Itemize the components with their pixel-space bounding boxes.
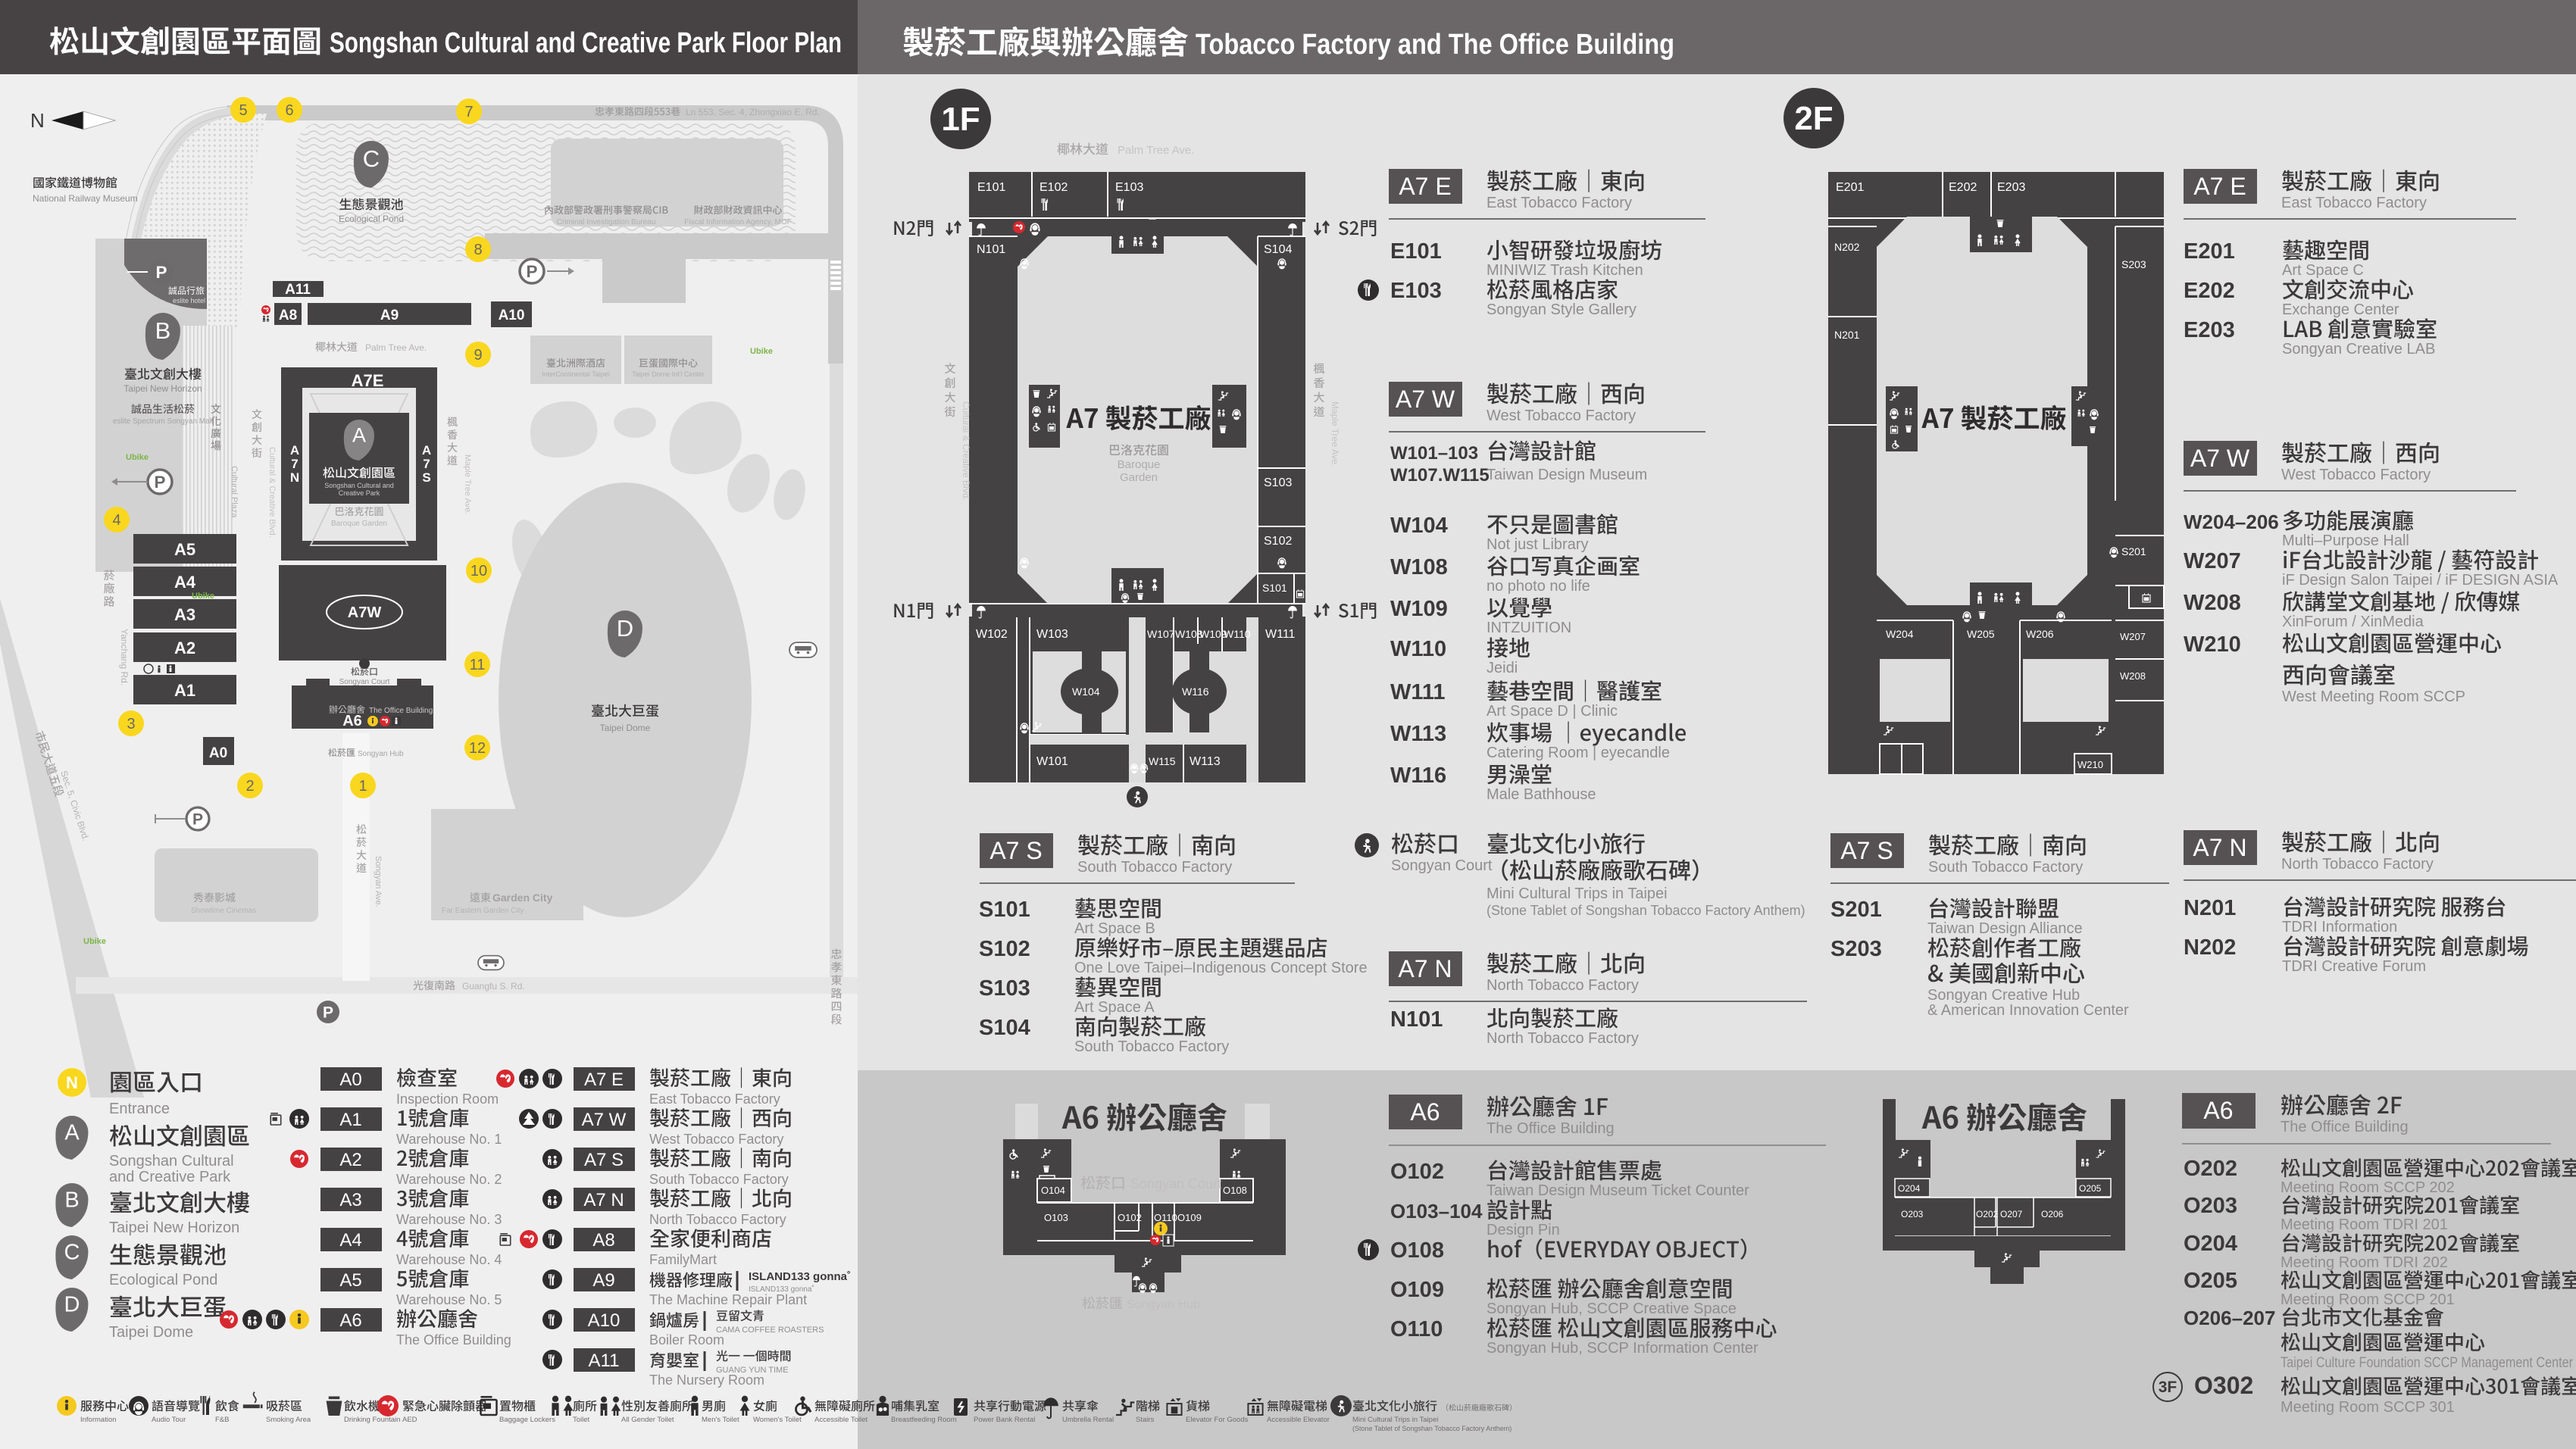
- svg-text:2: 2: [245, 778, 254, 795]
- svg-text:A7 N: A7 N: [1398, 955, 1452, 982]
- svg-text:Art Space A: Art Space A: [1074, 999, 1155, 1016]
- svg-text:A5: A5: [174, 540, 195, 559]
- svg-text:Warehouse No. 2: Warehouse No. 2: [396, 1172, 502, 1187]
- svg-text:A1: A1: [339, 1110, 361, 1130]
- svg-text:W101: W101: [1036, 755, 1068, 768]
- svg-text:InterContinental Taipei: InterContinental Taipei: [542, 370, 609, 378]
- svg-text:A: A: [352, 423, 366, 446]
- svg-text:Palm Tree Ave.: Palm Tree Ave.: [1118, 144, 1194, 157]
- svg-text:Ubike: Ubike: [83, 937, 106, 946]
- svg-text:FamilyMart: FamilyMart: [649, 1252, 717, 1267]
- svg-text:Songyan Hub, SCCP Information: Songyan Hub, SCCP Information Center: [1487, 1340, 1758, 1357]
- svg-text:O109: O109: [1177, 1212, 1202, 1223]
- svg-text:Cultural Plaza: Cultural Plaza: [230, 466, 239, 518]
- svg-text:Creative Park: Creative Park: [339, 489, 380, 497]
- svg-text:6: 6: [285, 102, 293, 119]
- svg-text:A: A: [422, 443, 431, 457]
- svg-text:West Meeting Room SCCP: West Meeting Room SCCP: [2282, 689, 2465, 705]
- svg-text:MINIWIZ Trash Kitchen: MINIWIZ Trash Kitchen: [1487, 262, 1643, 279]
- svg-text:D: D: [64, 1293, 80, 1317]
- svg-text:Maple Tree Ave.: Maple Tree Ave.: [1330, 401, 1340, 467]
- svg-text:A7 S: A7 S: [584, 1150, 624, 1170]
- svg-text:Fiscal Information Agency, MOF: Fiscal Information Agency, MOF: [684, 218, 792, 226]
- svg-text:West Tobacco Factory: West Tobacco Factory: [1487, 408, 1636, 424]
- svg-text:Jeidi: Jeidi: [1487, 660, 1518, 676]
- svg-text:TDRI Information: TDRI Information: [2282, 919, 2397, 935]
- svg-text:W109: W109: [1390, 597, 1448, 621]
- svg-text:Songshan Cultural: Songshan Cultural: [109, 1153, 234, 1170]
- svg-text:South Tobacco Factory: South Tobacco Factory: [1074, 1038, 1229, 1055]
- svg-text:E202: E202: [2184, 279, 2235, 303]
- svg-text:Meeting Room SCCP 202: Meeting Room SCCP 202: [2281, 1179, 2455, 1196]
- svg-text:Criminal Investigation Bureau: Criminal Investigation Bureau: [557, 218, 656, 226]
- svg-text:O203: O203: [2184, 1194, 2237, 1218]
- svg-text:S103: S103: [979, 976, 1030, 1001]
- svg-text:A9: A9: [592, 1270, 614, 1291]
- svg-text:W115: W115: [1149, 755, 1176, 767]
- svg-text:W206: W206: [2026, 628, 2054, 640]
- svg-text:Meeting Room TDRI 202: Meeting Room TDRI 202: [2281, 1254, 2448, 1271]
- svg-text:B: B: [64, 1188, 79, 1213]
- svg-text:O204: O204: [2184, 1232, 2237, 1256]
- svg-text:Songyan Creative Hub: Songyan Creative Hub: [1927, 987, 2080, 1004]
- svg-text:Songshan Cultural and: Songshan Cultural and: [324, 482, 394, 489]
- svg-text:Baroque Garden: Baroque Garden: [331, 520, 387, 528]
- svg-text:A7 N: A7 N: [583, 1190, 624, 1210]
- svg-text:Power Bank Rental: Power Bank Rental: [974, 1416, 1035, 1424]
- svg-text:Baggage Lockers: Baggage Lockers: [499, 1416, 555, 1424]
- svg-text:W116: W116: [1390, 764, 1446, 788]
- svg-text:W116: W116: [1182, 685, 1209, 698]
- svg-text:A7 W: A7 W: [2190, 445, 2250, 472]
- svg-text:A7 S: A7 S: [1840, 837, 1893, 864]
- svg-text:4: 4: [112, 512, 120, 529]
- svg-text:Women's Toilet: Women's Toilet: [753, 1416, 802, 1424]
- svg-text:S201: S201: [2121, 545, 2146, 557]
- svg-text:A4: A4: [339, 1230, 361, 1251]
- svg-text:E101: E101: [1390, 239, 1442, 264]
- svg-text:12: 12: [469, 740, 486, 757]
- svg-text:Songshan Cultural and Creative: Songshan Cultural and Creative Park Floo…: [330, 27, 842, 59]
- svg-text:C: C: [363, 145, 380, 172]
- svg-text:Taiwan Design Museum: Taiwan Design Museum: [1487, 467, 1647, 483]
- svg-text:Smoking Area: Smoking Area: [266, 1416, 311, 1424]
- svg-text:P: P: [527, 262, 538, 281]
- svg-text:A6: A6: [339, 1310, 361, 1331]
- svg-text:Male Bathhouse: Male Bathhouse: [1487, 786, 1596, 803]
- svg-text:The Machine Repair Plant: The Machine Repair Plant: [649, 1292, 807, 1307]
- svg-text:O206–207: O206–207: [2184, 1307, 2275, 1329]
- svg-text:O103: O103: [1044, 1212, 1068, 1223]
- svg-text:A2: A2: [339, 1150, 361, 1170]
- svg-text:Maple Tree Ave.: Maple Tree Ave.: [463, 454, 472, 514]
- svg-text:3F: 3F: [2159, 1379, 2177, 1396]
- svg-text:Design Pin: Design Pin: [1487, 1222, 1560, 1238]
- svg-text:eslite hotel: eslite hotel: [173, 297, 205, 304]
- svg-text:2F: 2F: [1794, 100, 1833, 137]
- svg-text:Tobacco Factory and The Office: Tobacco Factory and The Office Building: [1196, 29, 1674, 61]
- svg-text:A2: A2: [174, 639, 195, 657]
- svg-text:N101: N101: [1390, 1007, 1443, 1032]
- svg-text:O202: O202: [2184, 1157, 2237, 1181]
- svg-text:S104: S104: [1264, 243, 1292, 256]
- svg-text:E203: E203: [1997, 181, 2025, 194]
- svg-text:W210: W210: [2077, 759, 2103, 770]
- svg-text:GUANG YUN TIME: GUANG YUN TIME: [716, 1366, 789, 1375]
- svg-text:O204: O204: [1898, 1183, 1921, 1194]
- svg-text:A4: A4: [174, 573, 196, 592]
- svg-text:Audio Tour: Audio Tour: [152, 1416, 186, 1424]
- svg-text:Far Eastern Garden City: Far Eastern Garden City: [442, 907, 524, 915]
- svg-text:A: A: [64, 1121, 80, 1145]
- svg-text:O104: O104: [1041, 1185, 1065, 1196]
- svg-text:A10: A10: [499, 308, 525, 323]
- svg-text:7: 7: [423, 457, 430, 471]
- svg-text:Mini Cultural Trips in Taipei: Mini Cultural Trips in Taipei: [1487, 885, 1668, 902]
- svg-text:A7 W: A7 W: [1396, 386, 1455, 413]
- svg-text:O108: O108: [1223, 1185, 1247, 1196]
- svg-text:W102: W102: [976, 628, 1008, 641]
- svg-text:F&B: F&B: [215, 1416, 229, 1424]
- svg-text:9: 9: [474, 347, 482, 364]
- svg-text:Songyan Ave.: Songyan Ave.: [374, 856, 383, 907]
- svg-text:S203: S203: [2121, 258, 2146, 270]
- svg-text:Multi–Purpose Hall: Multi–Purpose Hall: [2282, 532, 2409, 549]
- svg-text:Meeting Room SCCP 301: Meeting Room SCCP 301: [2281, 1399, 2455, 1416]
- svg-text:Cultural & Creative Blvd.: Cultural & Creative Blvd.: [961, 401, 971, 501]
- svg-text:S102: S102: [1264, 535, 1292, 548]
- svg-text:O202: O202: [1976, 1209, 1999, 1219]
- svg-text:E103: E103: [1390, 279, 1442, 303]
- svg-text:1F: 1F: [941, 101, 980, 138]
- svg-text:O302: O302: [2194, 1372, 2253, 1399]
- svg-text:W204–206: W204–206: [2184, 511, 2279, 533]
- svg-text:CAMA COFFEE ROASTERS: CAMA COFFEE ROASTERS: [716, 1326, 824, 1335]
- svg-text:Meeting Room TDRI 201: Meeting Room TDRI 201: [2281, 1216, 2448, 1233]
- svg-text:O205: O205: [2079, 1183, 2102, 1194]
- svg-text:North Tobacco Factory: North Tobacco Factory: [649, 1212, 786, 1227]
- svg-text:Meeting Room SCCP 201: Meeting Room SCCP 201: [2281, 1291, 2455, 1308]
- svg-text:A7 S: A7 S: [989, 837, 1042, 864]
- svg-text:ISLAND133 gonna˚: ISLAND133 gonna˚: [749, 1270, 851, 1283]
- svg-text:A5: A5: [339, 1270, 361, 1291]
- svg-text:Songyan Hub, SCCP Creative Spa: Songyan Hub, SCCP Creative Space: [1487, 1301, 1737, 1317]
- svg-text:A7 E: A7 E: [1399, 173, 1451, 200]
- svg-text:O102: O102: [1118, 1212, 1142, 1223]
- svg-text:Breastfeeding Room: Breastfeeding Room: [891, 1416, 957, 1424]
- svg-text:A3: A3: [339, 1190, 361, 1210]
- svg-text:West Tobacco Factory: West Tobacco Factory: [2281, 467, 2431, 483]
- svg-text:N202: N202: [2184, 935, 2236, 960]
- svg-text:Taiwan Design Alliance: Taiwan Design Alliance: [1927, 920, 2083, 937]
- svg-text:W110: W110: [1390, 637, 1446, 661]
- svg-text:A7W: A7W: [348, 604, 382, 621]
- svg-text:A7E: A7E: [352, 371, 384, 390]
- svg-text:Ln 553, Sec. 4, Zhongxiao E. R: Ln 553, Sec. 4, Zhongxiao E. Rd.: [686, 107, 820, 117]
- svg-text:Taipei Dome: Taipei Dome: [600, 723, 651, 733]
- svg-text:Taipei New Horizon: Taipei New Horizon: [109, 1219, 239, 1236]
- svg-text:E201: E201: [2184, 239, 2235, 264]
- svg-text:O110: O110: [1390, 1317, 1443, 1341]
- svg-text:5: 5: [239, 102, 247, 119]
- svg-text:W107.W115: W107.W115: [1390, 465, 1490, 486]
- svg-text:C: C: [64, 1241, 80, 1265]
- svg-text:iF Design Salon Taipei / iF DE: iF Design Salon Taipei / iF DESIGN ASIA: [2282, 572, 2559, 589]
- svg-text:1: 1: [358, 778, 367, 795]
- svg-text:3: 3: [127, 716, 135, 732]
- svg-text:10: 10: [470, 563, 487, 579]
- svg-text:South Tobacco Factory: South Tobacco Factory: [1928, 859, 2083, 876]
- svg-text:S103: S103: [1264, 476, 1292, 489]
- svg-text:S102: S102: [979, 937, 1030, 961]
- svg-text:Songyan Style Gallery: Songyan Style Gallery: [1487, 301, 1637, 318]
- svg-text:A7 W: A7 W: [582, 1110, 627, 1130]
- svg-text:W205: W205: [1967, 628, 1995, 640]
- svg-text:A8: A8: [592, 1230, 614, 1251]
- svg-text:B: B: [155, 317, 171, 344]
- svg-text:W208: W208: [2184, 591, 2241, 615]
- svg-text:N: N: [290, 470, 299, 485]
- svg-text:W210: W210: [2184, 632, 2241, 657]
- svg-text:Yanchang Rd.: Yanchang Rd.: [119, 629, 130, 685]
- svg-text:West Tobacco Factory: West Tobacco Factory: [649, 1132, 783, 1147]
- svg-text:W110: W110: [1224, 628, 1251, 640]
- svg-text:Ubike: Ubike: [126, 453, 148, 462]
- svg-text:Showtime Cinemas: Showtime Cinemas: [191, 907, 256, 915]
- svg-text:(Stone Tablet of Songshan Toba: (Stone Tablet of Songshan Tobacco Factor…: [1487, 903, 1805, 918]
- svg-text:8: 8: [474, 242, 482, 258]
- svg-text:W108: W108: [1390, 555, 1448, 579]
- svg-text:W208: W208: [2120, 670, 2146, 682]
- svg-text:O207: O207: [2000, 1209, 2023, 1219]
- svg-text:A9: A9: [380, 308, 399, 323]
- svg-text:W113: W113: [1390, 722, 1446, 746]
- svg-text:Songyan Court: Songyan Court: [1130, 1176, 1221, 1191]
- svg-text:E202: E202: [1949, 181, 1977, 194]
- svg-text:Boiler Room: Boiler Room: [649, 1332, 724, 1348]
- svg-text:Guangfu S. Rd.: Guangfu S. Rd.: [462, 981, 525, 992]
- svg-text:Garden City: Garden City: [492, 892, 553, 904]
- svg-text:W111: W111: [1265, 628, 1296, 641]
- svg-text:A10: A10: [588, 1310, 621, 1331]
- svg-text:W104: W104: [1072, 685, 1100, 698]
- svg-text:O102: O102: [1390, 1160, 1444, 1184]
- svg-text:East Tobacco Factory: East Tobacco Factory: [649, 1091, 780, 1107]
- svg-text:W107: W107: [1147, 628, 1175, 640]
- svg-text:S101: S101: [979, 898, 1030, 922]
- svg-text:The Office Building: The Office Building: [369, 707, 433, 715]
- svg-text:W111: W111: [1390, 680, 1446, 704]
- svg-text:(Stone Tablet of Songshan Toba: (Stone Tablet of Songshan Tobacco Factor…: [1352, 1425, 1512, 1432]
- svg-text:Ecological Pond: Ecological Pond: [109, 1272, 217, 1288]
- svg-text:P: P: [156, 263, 167, 282]
- svg-text:7: 7: [291, 457, 298, 471]
- svg-text:A7 N: A7 N: [2193, 834, 2246, 861]
- svg-text:Songyan Hub: Songyan Hub: [1127, 1298, 1200, 1311]
- svg-text:O103–104: O103–104: [1390, 1200, 1483, 1223]
- svg-text:O109: O109: [1390, 1278, 1444, 1302]
- svg-text:A0: A0: [209, 745, 227, 761]
- svg-text:Warehouse No. 1: Warehouse No. 1: [396, 1132, 502, 1147]
- svg-text:N: N: [30, 109, 45, 132]
- svg-text:East Tobacco Factory: East Tobacco Factory: [2281, 195, 2427, 211]
- svg-text:N201: N201: [2184, 896, 2236, 920]
- svg-text:E102: E102: [1039, 181, 1068, 194]
- svg-text:Toilet: Toilet: [573, 1416, 590, 1424]
- svg-text:A6: A6: [1410, 1098, 1440, 1126]
- svg-text:North Tobacco Factory: North Tobacco Factory: [1487, 1030, 1639, 1047]
- svg-text:A1: A1: [174, 681, 195, 700]
- svg-text:Exchange Center: Exchange Center: [2282, 301, 2399, 318]
- svg-text:W113: W113: [1190, 755, 1221, 768]
- svg-text:Mini Cultural Trips in Taipei: Mini Cultural Trips in Taipei: [1352, 1416, 1438, 1424]
- svg-text:D: D: [617, 615, 633, 642]
- svg-text:and Creative Park: and Creative Park: [109, 1169, 231, 1185]
- svg-text:Warehouse No. 3: Warehouse No. 3: [396, 1212, 502, 1227]
- svg-text:One Love Taipei–Indigenous Con: One Love Taipei–Indigenous Concept Store: [1074, 960, 1368, 976]
- svg-text:Elevator For Goods: Elevator For Goods: [1186, 1416, 1249, 1424]
- svg-text:INTZUITION: INTZUITION: [1487, 620, 1571, 636]
- svg-text:AED: AED: [402, 1416, 417, 1424]
- svg-text:S201: S201: [1830, 898, 1882, 922]
- svg-text:A7 E: A7 E: [2193, 173, 2246, 200]
- svg-text:P: P: [192, 811, 203, 829]
- svg-text:W103: W103: [1036, 628, 1068, 641]
- svg-text:N201: N201: [1834, 329, 1860, 341]
- svg-text:A3: A3: [174, 605, 195, 624]
- svg-text:Entrance: Entrance: [109, 1101, 170, 1117]
- svg-text:O205: O205: [2184, 1269, 2237, 1293]
- svg-text:S203: S203: [1830, 937, 1882, 961]
- svg-text:Ubike: Ubike: [192, 592, 214, 601]
- svg-text:A6: A6: [342, 713, 362, 729]
- svg-text:All Gender Toilet: All Gender Toilet: [621, 1416, 674, 1424]
- svg-text:The Office Building: The Office Building: [2281, 1119, 2409, 1135]
- svg-text:The Nursery Room: The Nursery Room: [649, 1372, 764, 1388]
- svg-text:A11: A11: [285, 282, 311, 298]
- svg-text:Songyan Creative LAB: Songyan Creative LAB: [2282, 341, 2435, 358]
- svg-text:Art Space D | Clinic: Art Space D | Clinic: [1487, 703, 1618, 720]
- svg-text:Umbrella Rental: Umbrella Rental: [1062, 1416, 1114, 1424]
- svg-text:& American Innovation Center: & American Innovation Center: [1927, 1002, 2129, 1019]
- svg-text:Art Space B: Art Space B: [1074, 920, 1155, 937]
- svg-text:eslite Spectrum Songyan Mall: eslite Spectrum Songyan Mall: [113, 417, 213, 426]
- svg-text:Baroque: Baroque: [1118, 458, 1161, 471]
- svg-text:Garden: Garden: [1120, 471, 1158, 484]
- svg-text:O203: O203: [1901, 1209, 1924, 1219]
- svg-text:Inspection Room: Inspection Room: [396, 1091, 499, 1107]
- svg-text:W101–103: W101–103: [1390, 443, 1478, 464]
- svg-text:Songyan Hub: Songyan Hub: [358, 750, 404, 758]
- svg-text:S: S: [422, 470, 430, 485]
- svg-text:A: A: [290, 443, 299, 457]
- svg-text:P: P: [155, 473, 166, 492]
- svg-text:N: N: [66, 1073, 78, 1092]
- svg-text:Warehouse No. 4: Warehouse No. 4: [396, 1252, 502, 1267]
- svg-text:ISLAND133 gonna˚: ISLAND133 gonna˚: [749, 1285, 814, 1294]
- svg-text:A7 E: A7 E: [584, 1070, 624, 1090]
- svg-text:North Tobacco Factory: North Tobacco Factory: [2281, 856, 2434, 873]
- svg-text:Taipei Dome: Taipei Dome: [109, 1324, 193, 1341]
- svg-text:South Tobacco Factory: South Tobacco Factory: [649, 1172, 789, 1187]
- svg-text:Not just Library: Not just Library: [1487, 536, 1589, 553]
- svg-text:Catering Room | eyecandle: Catering Room | eyecandle: [1487, 745, 1670, 761]
- svg-text:O108: O108: [1390, 1238, 1444, 1263]
- svg-text:O206: O206: [2041, 1209, 2064, 1219]
- svg-text:Ubike: Ubike: [750, 347, 773, 356]
- svg-text:N101: N101: [977, 243, 1005, 256]
- svg-text:Palm Tree Ave.: Palm Tree Ave.: [365, 342, 427, 353]
- svg-text:Art Space C: Art Space C: [2282, 262, 2364, 279]
- svg-text:E201: E201: [1836, 181, 1864, 194]
- svg-text:E101: E101: [977, 181, 1005, 194]
- svg-text:O110: O110: [1154, 1212, 1177, 1223]
- svg-text:A0: A0: [339, 1070, 361, 1090]
- svg-text:The Office Building: The Office Building: [396, 1332, 511, 1348]
- svg-text:P: P: [323, 1004, 333, 1022]
- svg-text:E103: E103: [1115, 181, 1143, 194]
- svg-text:Songyan Court: Songyan Court: [1391, 857, 1493, 874]
- svg-text:Drinking Fountain: Drinking Fountain: [344, 1416, 400, 1424]
- svg-text:A8: A8: [279, 308, 297, 323]
- svg-text:East Tobacco Factory: East Tobacco Factory: [1487, 195, 1632, 211]
- svg-text:E203: E203: [2184, 318, 2235, 342]
- svg-text:W204: W204: [1886, 628, 1914, 640]
- svg-text:11: 11: [470, 657, 486, 673]
- svg-text:W207: W207: [2120, 631, 2146, 642]
- svg-text:National Railway Museum: National Railway Museum: [33, 193, 138, 204]
- svg-text:A11: A11: [589, 1351, 620, 1371]
- svg-text:South Tobacco Factory: South Tobacco Factory: [1077, 859, 1232, 876]
- svg-text:North Tobacco Factory: North Tobacco Factory: [1487, 977, 1639, 994]
- svg-text:Taipei New Horizon: Taipei New Horizon: [123, 383, 202, 394]
- svg-text:Taipei Culture Foundation SCCP: Taipei Culture Foundation SCCP Managemen…: [2281, 1355, 2574, 1371]
- svg-text:Cultural & Creative Blvd.: Cultural & Creative Blvd.: [267, 447, 277, 538]
- svg-text:Accessible Toilet: Accessible Toilet: [814, 1416, 868, 1424]
- svg-text:7: 7: [464, 104, 473, 120]
- svg-text:Ecological Pond: Ecological Pond: [339, 214, 404, 224]
- svg-text:Taiwan Design Museum Ticket Co: Taiwan Design Museum Ticket Counter: [1487, 1182, 1749, 1199]
- svg-text:S101: S101: [1262, 582, 1287, 594]
- svg-text:N202: N202: [1834, 241, 1860, 253]
- svg-text:Taipei Dome Int'l Center: Taipei Dome Int'l Center: [632, 370, 705, 378]
- svg-text:The Office Building: The Office Building: [1487, 1120, 1615, 1137]
- svg-text:A6: A6: [2203, 1097, 2233, 1124]
- svg-text:TDRI Creative Forum: TDRI Creative Forum: [2282, 958, 2426, 975]
- svg-text:Information: Information: [80, 1416, 117, 1424]
- svg-text:Warehouse No. 5: Warehouse No. 5: [396, 1292, 502, 1307]
- svg-text:XinForum / XinMedia: XinForum / XinMedia: [2282, 614, 2424, 630]
- svg-text:S104: S104: [979, 1016, 1030, 1040]
- svg-text:Accessible Elevator: Accessible Elevator: [1267, 1416, 1330, 1424]
- svg-text:W207: W207: [2184, 549, 2241, 573]
- svg-text:W104: W104: [1390, 514, 1448, 538]
- svg-text:Stairs: Stairs: [1136, 1416, 1155, 1424]
- svg-text:no photo no life: no photo no life: [1487, 578, 1590, 595]
- svg-text:Men's Toilet: Men's Toilet: [702, 1416, 739, 1424]
- svg-text:Songyan Court: Songyan Court: [339, 678, 390, 686]
